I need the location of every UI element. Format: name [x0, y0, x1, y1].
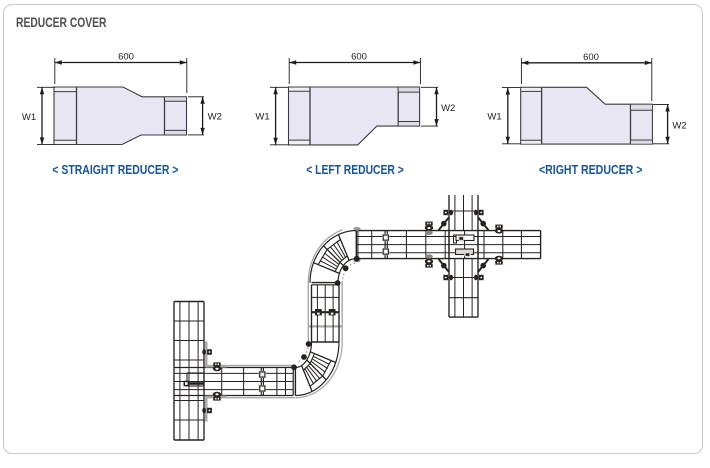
svg-text:W1: W1: [22, 112, 36, 123]
svg-text:< LEFT REDUCER >: < LEFT REDUCER >: [306, 162, 404, 177]
svg-text:600: 600: [583, 52, 599, 63]
svg-text:W1: W1: [487, 112, 501, 123]
svg-text:600: 600: [118, 52, 134, 63]
svg-text:<RIGHT REDUCER >: <RIGHT REDUCER >: [539, 162, 643, 177]
svg-text:W1: W1: [255, 112, 269, 123]
svg-text:W2: W2: [208, 112, 222, 123]
svg-text:W2: W2: [441, 103, 455, 114]
svg-text:< STRAIGHT REDUCER >: < STRAIGHT REDUCER >: [52, 162, 178, 177]
svg-text:600: 600: [351, 52, 367, 63]
svg-text:W2: W2: [672, 121, 686, 132]
svg-text:REDUCER COVER: REDUCER COVER: [16, 14, 107, 30]
